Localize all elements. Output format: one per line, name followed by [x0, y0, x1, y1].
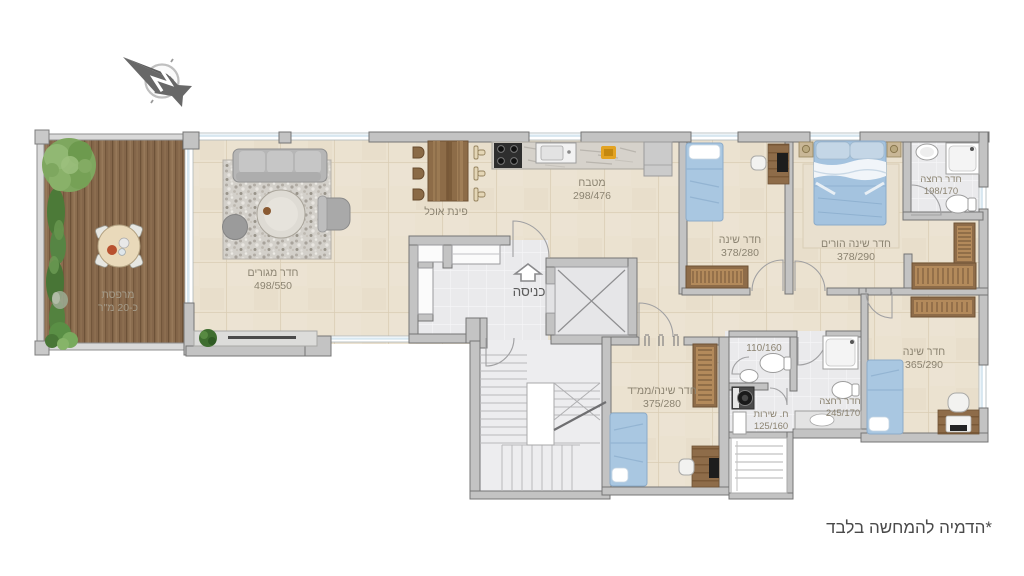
- svg-text:245/170: 245/170: [826, 408, 860, 419]
- svg-text:חדר שינה: חדר שינה: [903, 346, 945, 358]
- svg-text:298/476: 298/476: [573, 190, 611, 202]
- svg-text:*הדמיה להמחשה בלבד: *הדמיה להמחשה בלבד: [826, 518, 992, 537]
- svg-text:498/550: 498/550: [254, 280, 292, 292]
- svg-text:פינת אוכל: פינת אוכל: [424, 206, 468, 218]
- svg-text:חדר שינה הורים: חדר שינה הורים: [821, 238, 891, 250]
- svg-text:חדר מגורים: חדר מגורים: [248, 267, 299, 279]
- svg-text:חדר שינה/ממ"ד: חדר שינה/ממ"ד: [627, 385, 696, 397]
- svg-text:חדר רחצה: חדר רחצה: [819, 396, 860, 407]
- svg-text:378/280: 378/280: [721, 247, 759, 259]
- svg-text:חדר שינה: חדר שינה: [719, 234, 761, 246]
- svg-text:198/170: 198/170: [924, 186, 958, 197]
- svg-text:365/290: 365/290: [905, 359, 943, 371]
- svg-text:375/280: 375/280: [643, 398, 681, 410]
- svg-text:חדר רחצה: חדר רחצה: [920, 174, 961, 185]
- svg-text:כניסה: כניסה: [513, 284, 546, 299]
- svg-text:מטבח: מטבח: [578, 177, 605, 189]
- svg-text:125/160: 125/160: [754, 421, 788, 432]
- svg-text:ח. שירות: ח. שירות: [753, 409, 788, 420]
- svg-text:מרפסת: מרפסת: [102, 289, 135, 301]
- svg-text:378/290: 378/290: [837, 251, 875, 263]
- svg-text:כ-20 מ"ר: כ-20 מ"ר: [98, 302, 138, 314]
- svg-text:110/160: 110/160: [746, 343, 782, 354]
